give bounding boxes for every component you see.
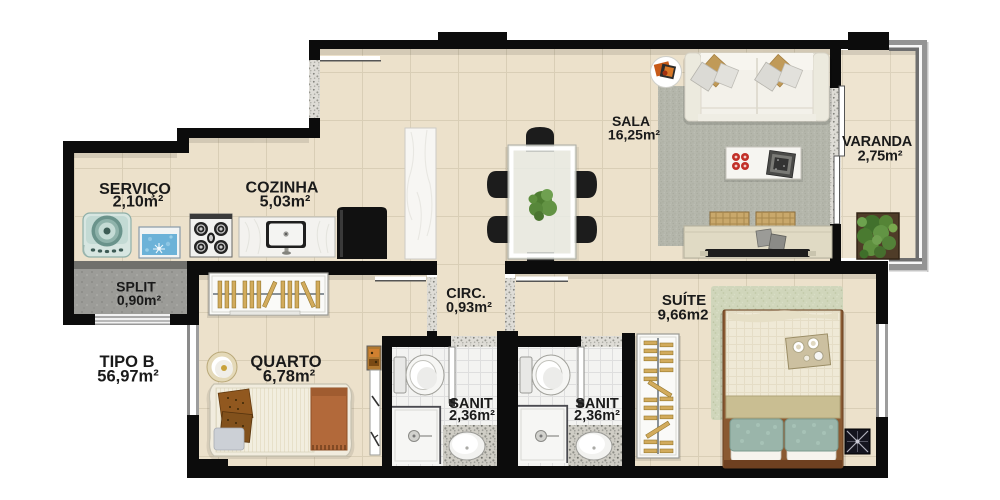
svg-text:2,75m²: 2,75m² (858, 149, 903, 165)
svg-text:6,78m²: 6,78m² (263, 368, 316, 386)
svg-text:56,97m²: 56,97m² (97, 368, 159, 386)
svg-text:2,36m²: 2,36m² (449, 408, 495, 424)
svg-text:16,25m²: 16,25m² (608, 127, 660, 143)
svg-text:2,36m²: 2,36m² (574, 408, 620, 424)
svg-text:2,10m²: 2,10m² (113, 194, 164, 211)
svg-text:0,93m²: 0,93m² (446, 300, 492, 316)
svg-text:0,90m²: 0,90m² (117, 292, 162, 308)
svg-text:5,03m²: 5,03m² (260, 194, 311, 211)
svg-text:9,66m2: 9,66m2 (658, 307, 709, 324)
